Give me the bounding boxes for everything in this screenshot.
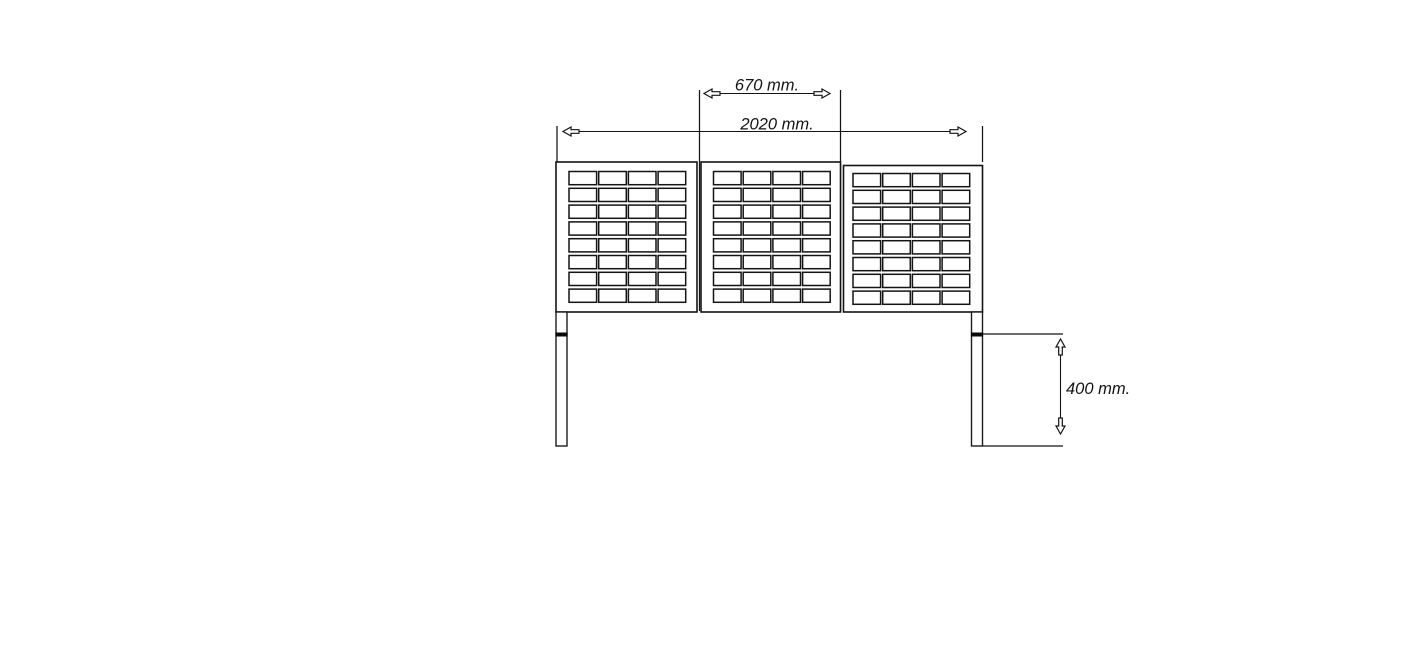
dim-arrow-right-icon xyxy=(814,89,830,98)
dimension-total-width: 2020 mm. xyxy=(557,116,983,163)
compartment-cell xyxy=(628,256,656,269)
panel-1 xyxy=(556,162,697,312)
dim-arrow-left-icon xyxy=(704,89,720,98)
compartment-cell xyxy=(853,224,881,237)
dim-arrow-left-icon xyxy=(563,127,579,136)
compartment-cell xyxy=(773,256,801,269)
compartment-cell xyxy=(853,190,881,203)
compartment-cell xyxy=(658,188,686,201)
compartment-cell xyxy=(658,239,686,252)
compartment-cell xyxy=(628,222,656,235)
compartment-cell xyxy=(912,190,940,203)
compartment-cell xyxy=(714,188,742,201)
compartment-cell xyxy=(912,274,940,287)
compartment-cell xyxy=(743,222,771,235)
dim-arrow-up-icon xyxy=(1056,339,1065,355)
total-width-label: 2020 mm. xyxy=(739,116,813,134)
compartment-cell xyxy=(714,205,742,218)
compartment-cell xyxy=(658,272,686,285)
compartment-cell xyxy=(569,222,597,235)
compartment-cell xyxy=(883,207,911,220)
compartment-cell xyxy=(912,258,940,271)
compartment-cell xyxy=(714,239,742,252)
compartment-cell xyxy=(658,289,686,302)
compartment-cell xyxy=(942,224,970,237)
compartment-cell xyxy=(628,272,656,285)
compartment-cell xyxy=(743,172,771,185)
compartment-cell xyxy=(803,272,831,285)
compartment-cell xyxy=(599,289,627,302)
dimension-leg-height: 400 mm. xyxy=(983,334,1130,446)
compartment-cell xyxy=(942,207,970,220)
compartment-cell xyxy=(628,289,656,302)
compartment-cell xyxy=(853,274,881,287)
compartment-cell xyxy=(658,256,686,269)
compartment-cell xyxy=(714,222,742,235)
compartment-cell xyxy=(912,241,940,254)
compartment-cell xyxy=(912,174,940,187)
compartment-cell xyxy=(883,274,911,287)
compartment-cell xyxy=(569,205,597,218)
compartment-cell xyxy=(773,289,801,302)
compartment-cell xyxy=(628,205,656,218)
panel-3 xyxy=(844,166,983,313)
compartment-cell xyxy=(569,256,597,269)
compartment-cell xyxy=(942,274,970,287)
compartment-cell xyxy=(599,172,627,185)
compartment-cell xyxy=(773,172,801,185)
compartment-cell xyxy=(743,205,771,218)
compartment-cell xyxy=(912,207,940,220)
compartment-cell xyxy=(743,289,771,302)
compartment-cell xyxy=(714,289,742,302)
compartment-cell xyxy=(599,256,627,269)
compartment-cell xyxy=(853,174,881,187)
compartment-cell xyxy=(803,256,831,269)
compartment-cell xyxy=(628,239,656,252)
compartment-cell xyxy=(942,258,970,271)
compartment-cell xyxy=(803,172,831,185)
compartment-cell xyxy=(743,239,771,252)
compartment-cell xyxy=(803,289,831,302)
compartment-cell xyxy=(599,205,627,218)
compartment-cell xyxy=(883,190,911,203)
compartment-cell xyxy=(853,291,881,304)
compartment-cell xyxy=(883,224,911,237)
left-leg xyxy=(555,312,567,446)
compartment-cell xyxy=(803,205,831,218)
compartment-cell xyxy=(743,188,771,201)
compartment-cell xyxy=(599,188,627,201)
compartment-cell xyxy=(853,241,881,254)
compartment-cell xyxy=(883,258,911,271)
compartment-cell xyxy=(599,272,627,285)
compartment-cell xyxy=(773,239,801,252)
compartment-cell xyxy=(942,241,970,254)
compartment-cell xyxy=(569,172,597,185)
compartment-cell xyxy=(942,174,970,187)
dim-arrow-down-icon xyxy=(1056,418,1065,434)
compartment-cell xyxy=(853,258,881,271)
panel-3-frame xyxy=(844,166,983,313)
compartment-cell xyxy=(569,239,597,252)
compartment-cell xyxy=(883,291,911,304)
compartment-cell xyxy=(714,272,742,285)
compartment-cell xyxy=(628,172,656,185)
leg-height-label: 400 mm. xyxy=(1066,380,1130,398)
compartment-cell xyxy=(853,207,881,220)
compartment-cell xyxy=(658,222,686,235)
compartment-cell xyxy=(569,272,597,285)
compartment-cell xyxy=(883,241,911,254)
compartment-cell xyxy=(569,188,597,201)
compartment-cell xyxy=(942,291,970,304)
compartment-cell xyxy=(628,188,656,201)
left-leg-post xyxy=(556,312,567,446)
drawing-svg: 670 mm. 2020 mm. xyxy=(0,0,1416,664)
right-leg-mount-mark xyxy=(971,333,983,337)
panel-width-label: 670 mm. xyxy=(735,77,799,95)
compartment-cell xyxy=(743,256,771,269)
dim-arrow-right-icon xyxy=(950,127,966,136)
compartment-cell xyxy=(773,222,801,235)
right-leg xyxy=(971,312,983,446)
compartment-cell xyxy=(658,172,686,185)
compartment-cell xyxy=(803,188,831,201)
compartment-cell xyxy=(803,222,831,235)
right-leg-post xyxy=(972,312,983,446)
compartment-cell xyxy=(773,205,801,218)
compartment-cell xyxy=(883,174,911,187)
compartment-cell xyxy=(942,190,970,203)
compartment-cell xyxy=(773,188,801,201)
compartment-cell xyxy=(714,172,742,185)
compartment-cell xyxy=(912,224,940,237)
compartment-cell xyxy=(569,289,597,302)
panel-2 xyxy=(701,162,841,312)
compartment-cell xyxy=(658,205,686,218)
left-leg-mount-mark xyxy=(555,333,567,337)
technical-drawing-canvas: 670 mm. 2020 mm. xyxy=(0,0,1416,664)
compartment-cell xyxy=(803,239,831,252)
compartment-cell xyxy=(599,239,627,252)
compartment-cell xyxy=(714,256,742,269)
compartment-cell xyxy=(773,272,801,285)
compartment-cell xyxy=(912,291,940,304)
compartment-cell xyxy=(743,272,771,285)
compartment-cell xyxy=(599,222,627,235)
